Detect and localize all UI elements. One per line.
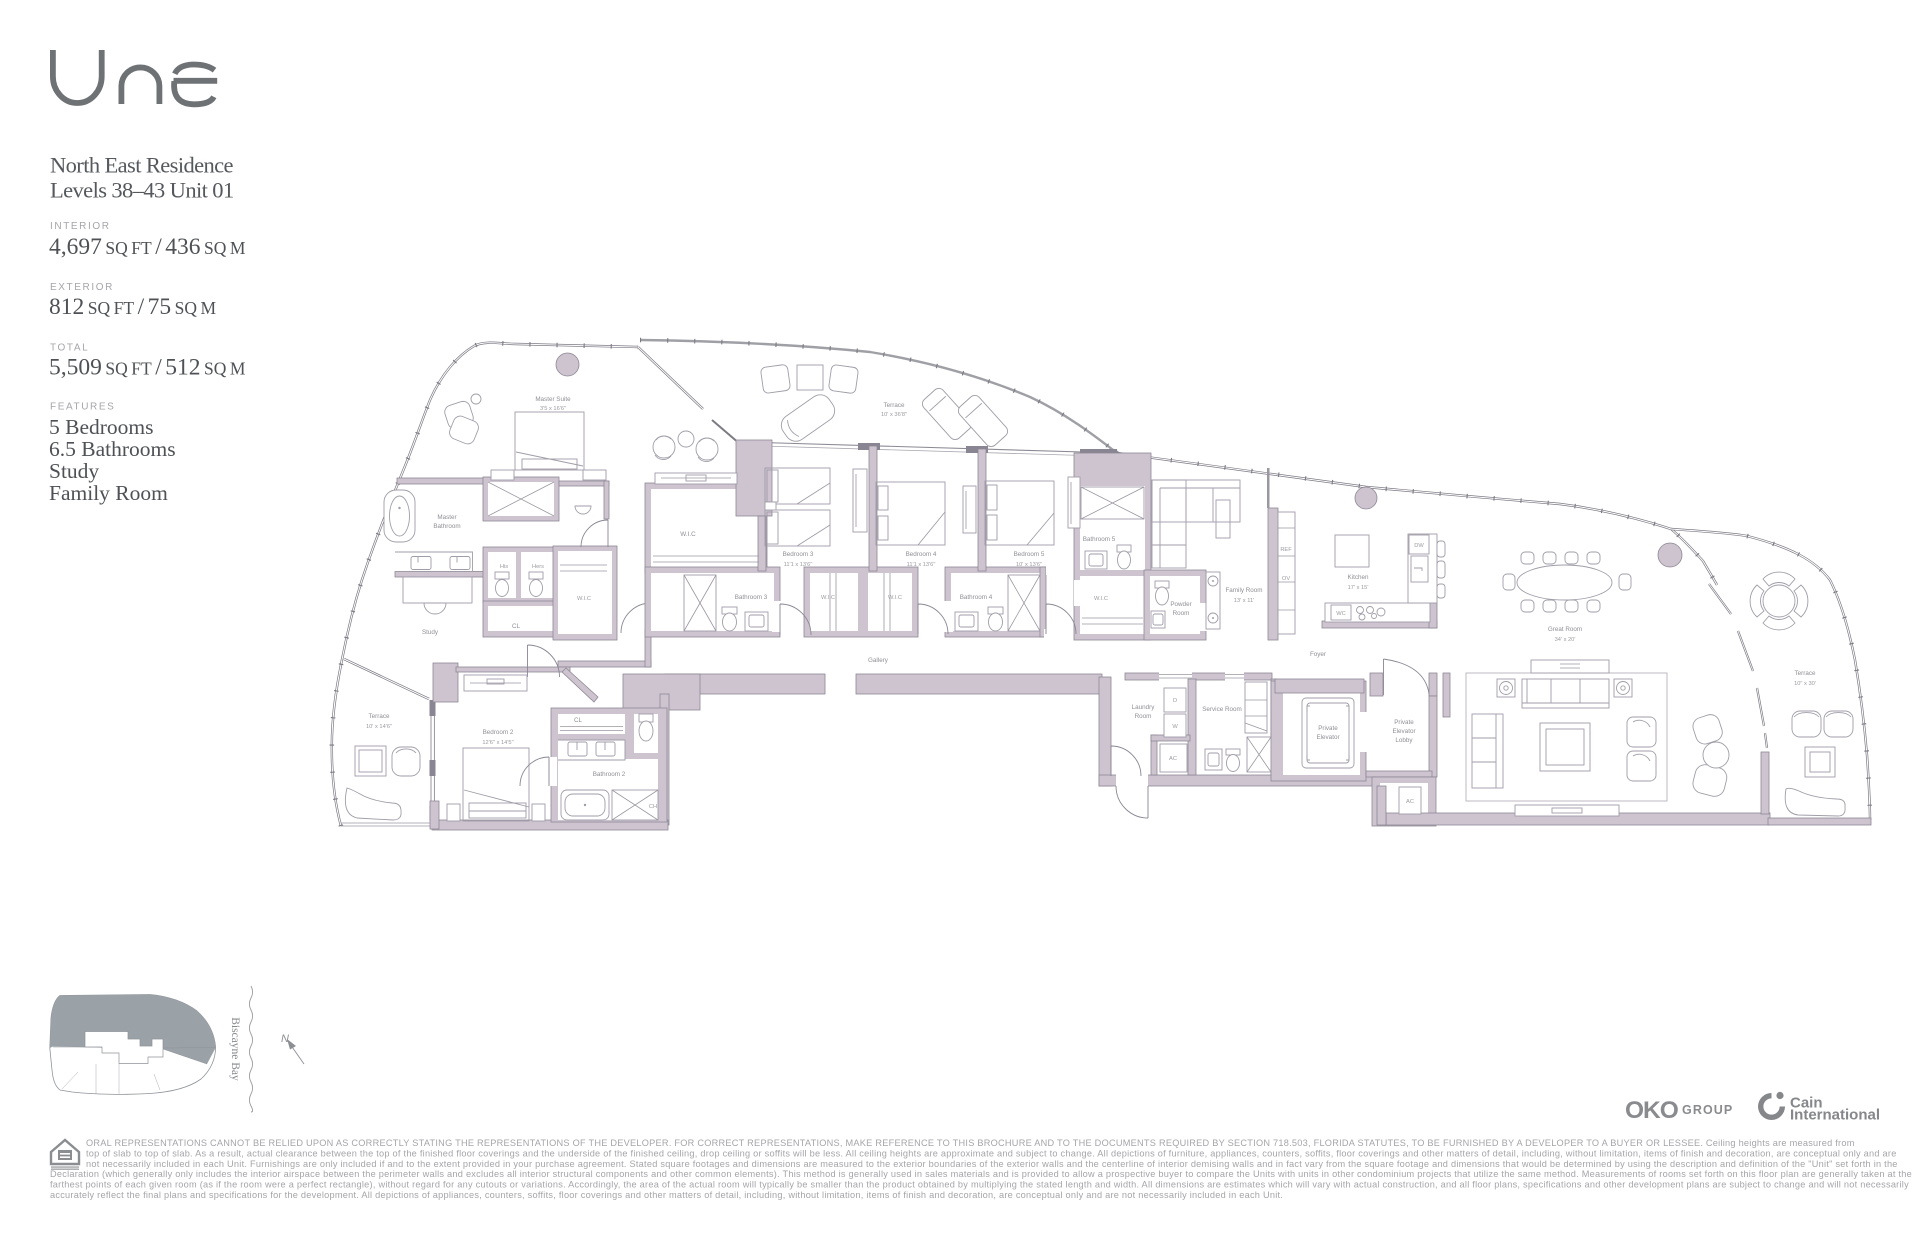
svg-text:OKO: OKO: [1625, 1097, 1679, 1124]
svg-text:International: International: [1790, 1107, 1880, 1124]
svg-text:North East Residence: North East Residence: [50, 153, 234, 178]
svg-text:top of slab to top of slab. As: top of slab to top of slab. As a result,…: [86, 1148, 1897, 1158]
svg-text:11'1 x 13'6": 11'1 x 13'6": [784, 562, 813, 568]
svg-text:ORAL REPRESENTATIONS CANNOT BE: ORAL REPRESENTATIONS CANNOT BE RELIED UP…: [86, 1138, 1855, 1148]
svg-text:13' x 11': 13' x 11': [1234, 598, 1254, 604]
svg-text:not necessarily included in ea: not necessarily included in each Unit. F…: [86, 1159, 1898, 1169]
svg-text:Room: Room: [1135, 713, 1152, 720]
svg-text:Bathroom: Bathroom: [433, 523, 460, 530]
svg-text:Powder: Powder: [1170, 601, 1191, 608]
svg-text:Declaration (which generally o: Declaration (which generally only includ…: [50, 1169, 1912, 1179]
svg-text:EXTERIOR: EXTERIOR: [50, 282, 114, 293]
svg-text:REF: REF: [1280, 547, 1292, 553]
svg-text:W.I.C: W.I.C: [1094, 596, 1108, 602]
svg-text:Private: Private: [1318, 725, 1338, 732]
svg-text:Biscayne Bay: Biscayne Bay: [229, 1017, 241, 1081]
svg-text:Bedroom 2: Bedroom 2: [483, 729, 514, 736]
svg-text:D: D: [1173, 698, 1177, 704]
svg-text:FEATURES: FEATURES: [50, 402, 115, 413]
svg-text:W: W: [1172, 724, 1178, 730]
svg-text:Terrace: Terrace: [369, 713, 390, 720]
svg-text:Laundry: Laundry: [1132, 704, 1156, 711]
svg-text:TOTAL: TOTAL: [50, 343, 89, 354]
svg-text:Elevator: Elevator: [1392, 728, 1415, 735]
svg-text:Terrace: Terrace: [1795, 670, 1816, 677]
svg-text:17' x 15': 17' x 15': [1348, 585, 1369, 591]
svg-text:W.I.C: W.I.C: [821, 595, 835, 601]
svg-text:Foyer: Foyer: [1310, 651, 1326, 658]
svg-text:Room: Room: [1173, 610, 1190, 617]
svg-text:Bathroom 4: Bathroom 4: [960, 594, 993, 601]
svg-text:Study: Study: [422, 629, 439, 636]
svg-text:4,697 SQ FT / 436 SQ M: 4,697 SQ FT / 436 SQ M: [49, 234, 246, 260]
svg-text:Family Room: Family Room: [49, 481, 168, 505]
svg-text:Bathroom 3: Bathroom 3: [735, 594, 768, 601]
svg-text:Bedroom 4: Bedroom 4: [906, 551, 937, 558]
svg-text:Master: Master: [437, 514, 456, 521]
svg-text:AC: AC: [1406, 799, 1414, 805]
svg-text:INTERIOR: INTERIOR: [50, 221, 111, 232]
svg-text:812 SQ FT / 75 SQ M: 812 SQ FT / 75 SQ M: [49, 294, 216, 320]
svg-text:GROUP: GROUP: [1682, 1103, 1733, 1117]
svg-text:CL: CL: [512, 623, 521, 630]
svg-text:W.I.C: W.I.C: [577, 596, 591, 602]
svg-text:Service Room: Service Room: [1202, 706, 1242, 713]
svg-text:Master Suite: Master Suite: [535, 396, 571, 403]
svg-text:10' x 36'8": 10' x 36'8": [881, 412, 907, 418]
svg-text:CL: CL: [574, 717, 583, 724]
svg-text:Bathroom 2: Bathroom 2: [593, 771, 626, 778]
svg-text:OV: OV: [1282, 576, 1290, 582]
svg-text:3'5 x 16'6": 3'5 x 16'6": [540, 406, 566, 412]
svg-text:Gallery: Gallery: [868, 657, 889, 664]
svg-text:6.5 Bathrooms: 6.5 Bathrooms: [49, 437, 176, 461]
svg-text:N: N: [281, 1033, 289, 1045]
svg-text:W.I.C: W.I.C: [680, 531, 696, 538]
svg-text:Great Room: Great Room: [1548, 626, 1582, 633]
svg-text:11'1 x 13'6": 11'1 x 13'6": [907, 562, 936, 568]
svg-text:34' x 20': 34' x 20': [1555, 637, 1576, 643]
svg-text:Levels 38–43 Unit 01: Levels 38–43 Unit 01: [50, 178, 234, 203]
svg-text:Kitchen: Kitchen: [1347, 574, 1369, 581]
svg-text:CH: CH: [649, 804, 657, 810]
svg-text:accurately reflect the final p: accurately reflect the final plans and s…: [50, 1190, 1283, 1200]
svg-text:Terrace: Terrace: [884, 402, 905, 409]
svg-text:Bathroom 5: Bathroom 5: [1083, 536, 1116, 543]
svg-text:WC: WC: [1336, 611, 1345, 617]
svg-text:W.I.C: W.I.C: [888, 595, 902, 601]
svg-text:10' x 14'6": 10' x 14'6": [366, 724, 392, 730]
svg-text:10' x 13'6": 10' x 13'6": [1016, 562, 1042, 568]
svg-text:12'6" x 14'5": 12'6" x 14'5": [482, 740, 513, 746]
svg-text:farthest points of each given: farthest points of each given room (as i…: [50, 1180, 1909, 1190]
svg-text:DW: DW: [1414, 543, 1424, 549]
svg-text:AC: AC: [1169, 756, 1177, 762]
svg-text:Elevator: Elevator: [1316, 734, 1339, 741]
svg-text:5,509 SQ FT / 512 SQ M: 5,509 SQ FT / 512 SQ M: [49, 355, 246, 381]
svg-text:Lobby: Lobby: [1395, 737, 1413, 744]
svg-text:Bedroom 5: Bedroom 5: [1014, 551, 1045, 558]
svg-text:Bedroom 3: Bedroom 3: [783, 551, 814, 558]
svg-text:Hers: Hers: [532, 564, 544, 570]
svg-text:5 Bedrooms: 5 Bedrooms: [49, 415, 154, 439]
svg-text:10" x 30': 10" x 30': [1794, 681, 1816, 687]
svg-text:His: His: [500, 564, 508, 570]
svg-text:Study: Study: [49, 459, 99, 483]
svg-text:Family Room: Family Room: [1225, 587, 1262, 594]
svg-text:Private: Private: [1394, 719, 1414, 726]
